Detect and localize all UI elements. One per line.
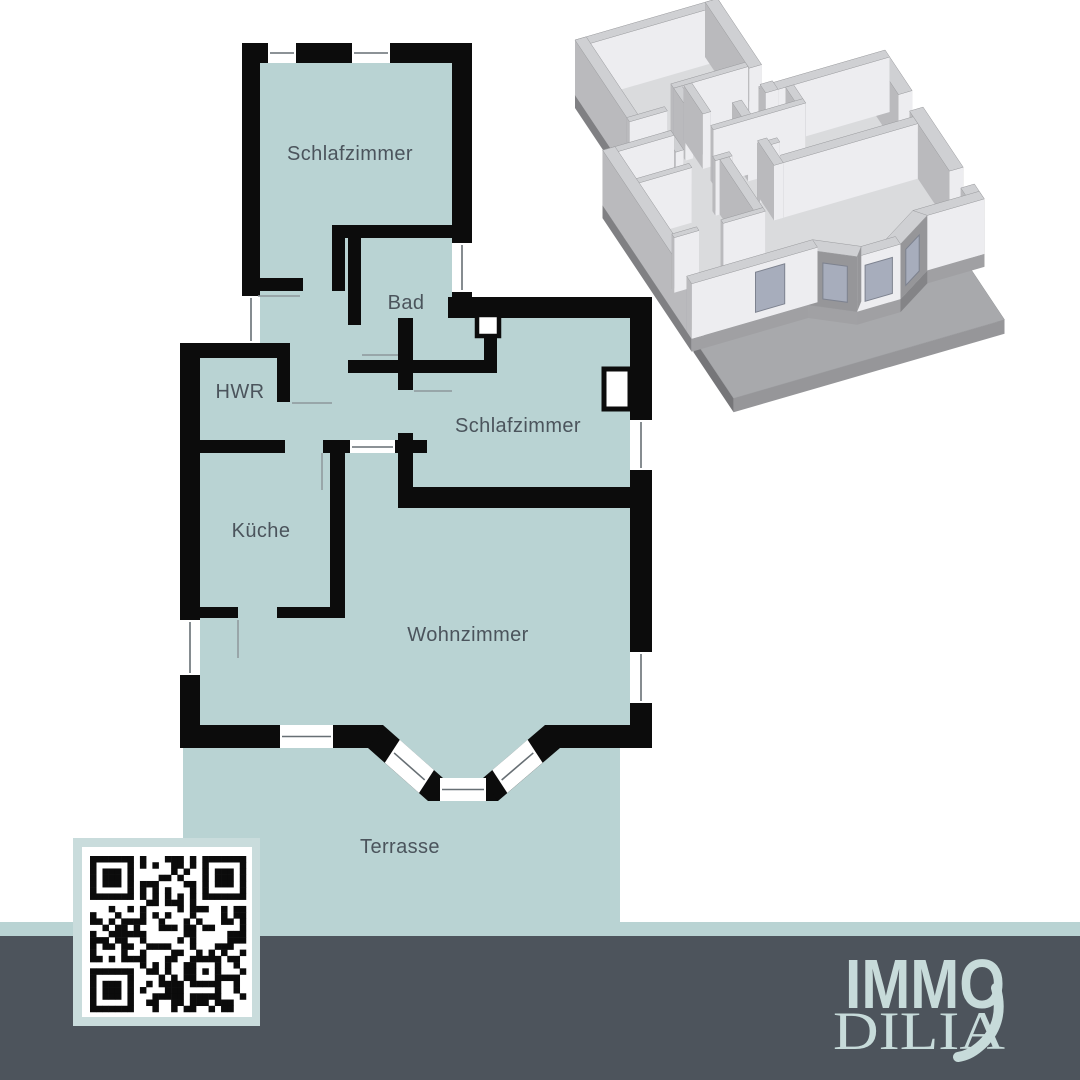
room-label-utility: HWR (216, 381, 265, 403)
room-label-living-room: Wohnzimmer (407, 624, 528, 646)
shaft-box-bathroom (477, 315, 499, 336)
qr-code (73, 838, 260, 1026)
shaft-box-east-wall (604, 369, 630, 409)
flyer-canvas: Schlafzimmer Bad HWR Schlafzimmer Küche … (0, 0, 1080, 1080)
room-label-kitchen: Küche (232, 520, 291, 542)
room-label-bathroom: Bad (388, 292, 425, 314)
room-label-bedroom2: Schlafzimmer (455, 415, 581, 437)
real-estate-flyer: Schlafzimmer Bad HWR Schlafzimmer Küche … (0, 0, 1080, 1080)
room-label-bedroom1: Schlafzimmer (287, 143, 413, 165)
logo: IMMO DILIA (833, 945, 1005, 1061)
room-label-terrace: Terrasse (360, 836, 440, 858)
